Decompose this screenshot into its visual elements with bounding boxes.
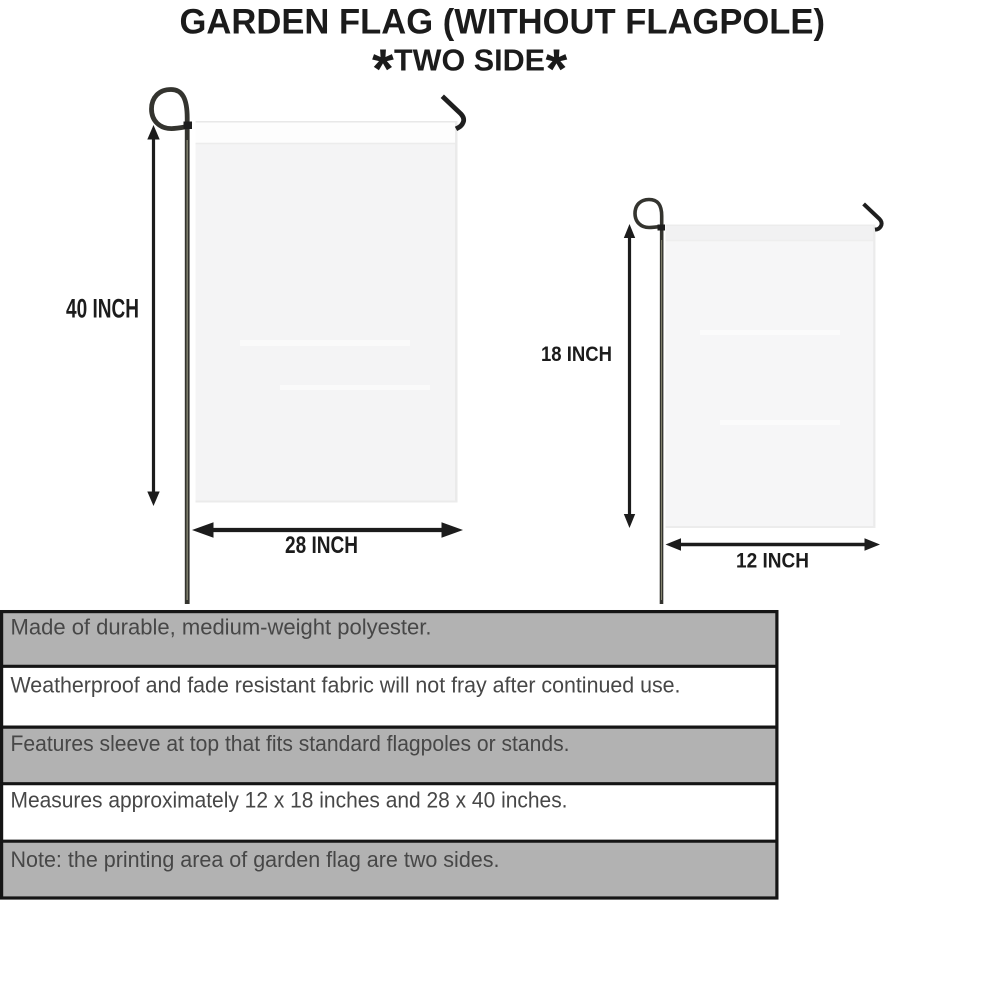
svg-text:Weatherproof and fade resistan: Weatherproof and fade resistant fabric w… (11, 673, 681, 698)
svg-text:TWO SIDE: TWO SIDE (394, 43, 545, 78)
svg-text:Note: the printing area of gar: Note: the printing area of garden flag a… (11, 847, 500, 872)
svg-text:Measures approximately 12 x 18: Measures approximately 12 x 18 inches an… (11, 788, 568, 813)
svg-text:Features sleeve at top that fi: Features sleeve at top that fits standar… (11, 731, 570, 756)
svg-text:40 INCH: 40 INCH (66, 294, 139, 324)
svg-text:*: * (546, 37, 568, 100)
svg-text:GARDEN FLAG (WITHOUT FLAGPOLE): GARDEN FLAG (WITHOUT FLAGPOLE) (180, 2, 826, 42)
svg-text:28 INCH: 28 INCH (285, 532, 358, 559)
svg-text:*: * (372, 37, 394, 100)
svg-text:Made of durable, medium-weight: Made of durable, medium-weight polyester… (11, 615, 432, 640)
svg-text:12 INCH: 12 INCH (736, 550, 809, 573)
svg-text:18 INCH: 18 INCH (541, 343, 612, 366)
